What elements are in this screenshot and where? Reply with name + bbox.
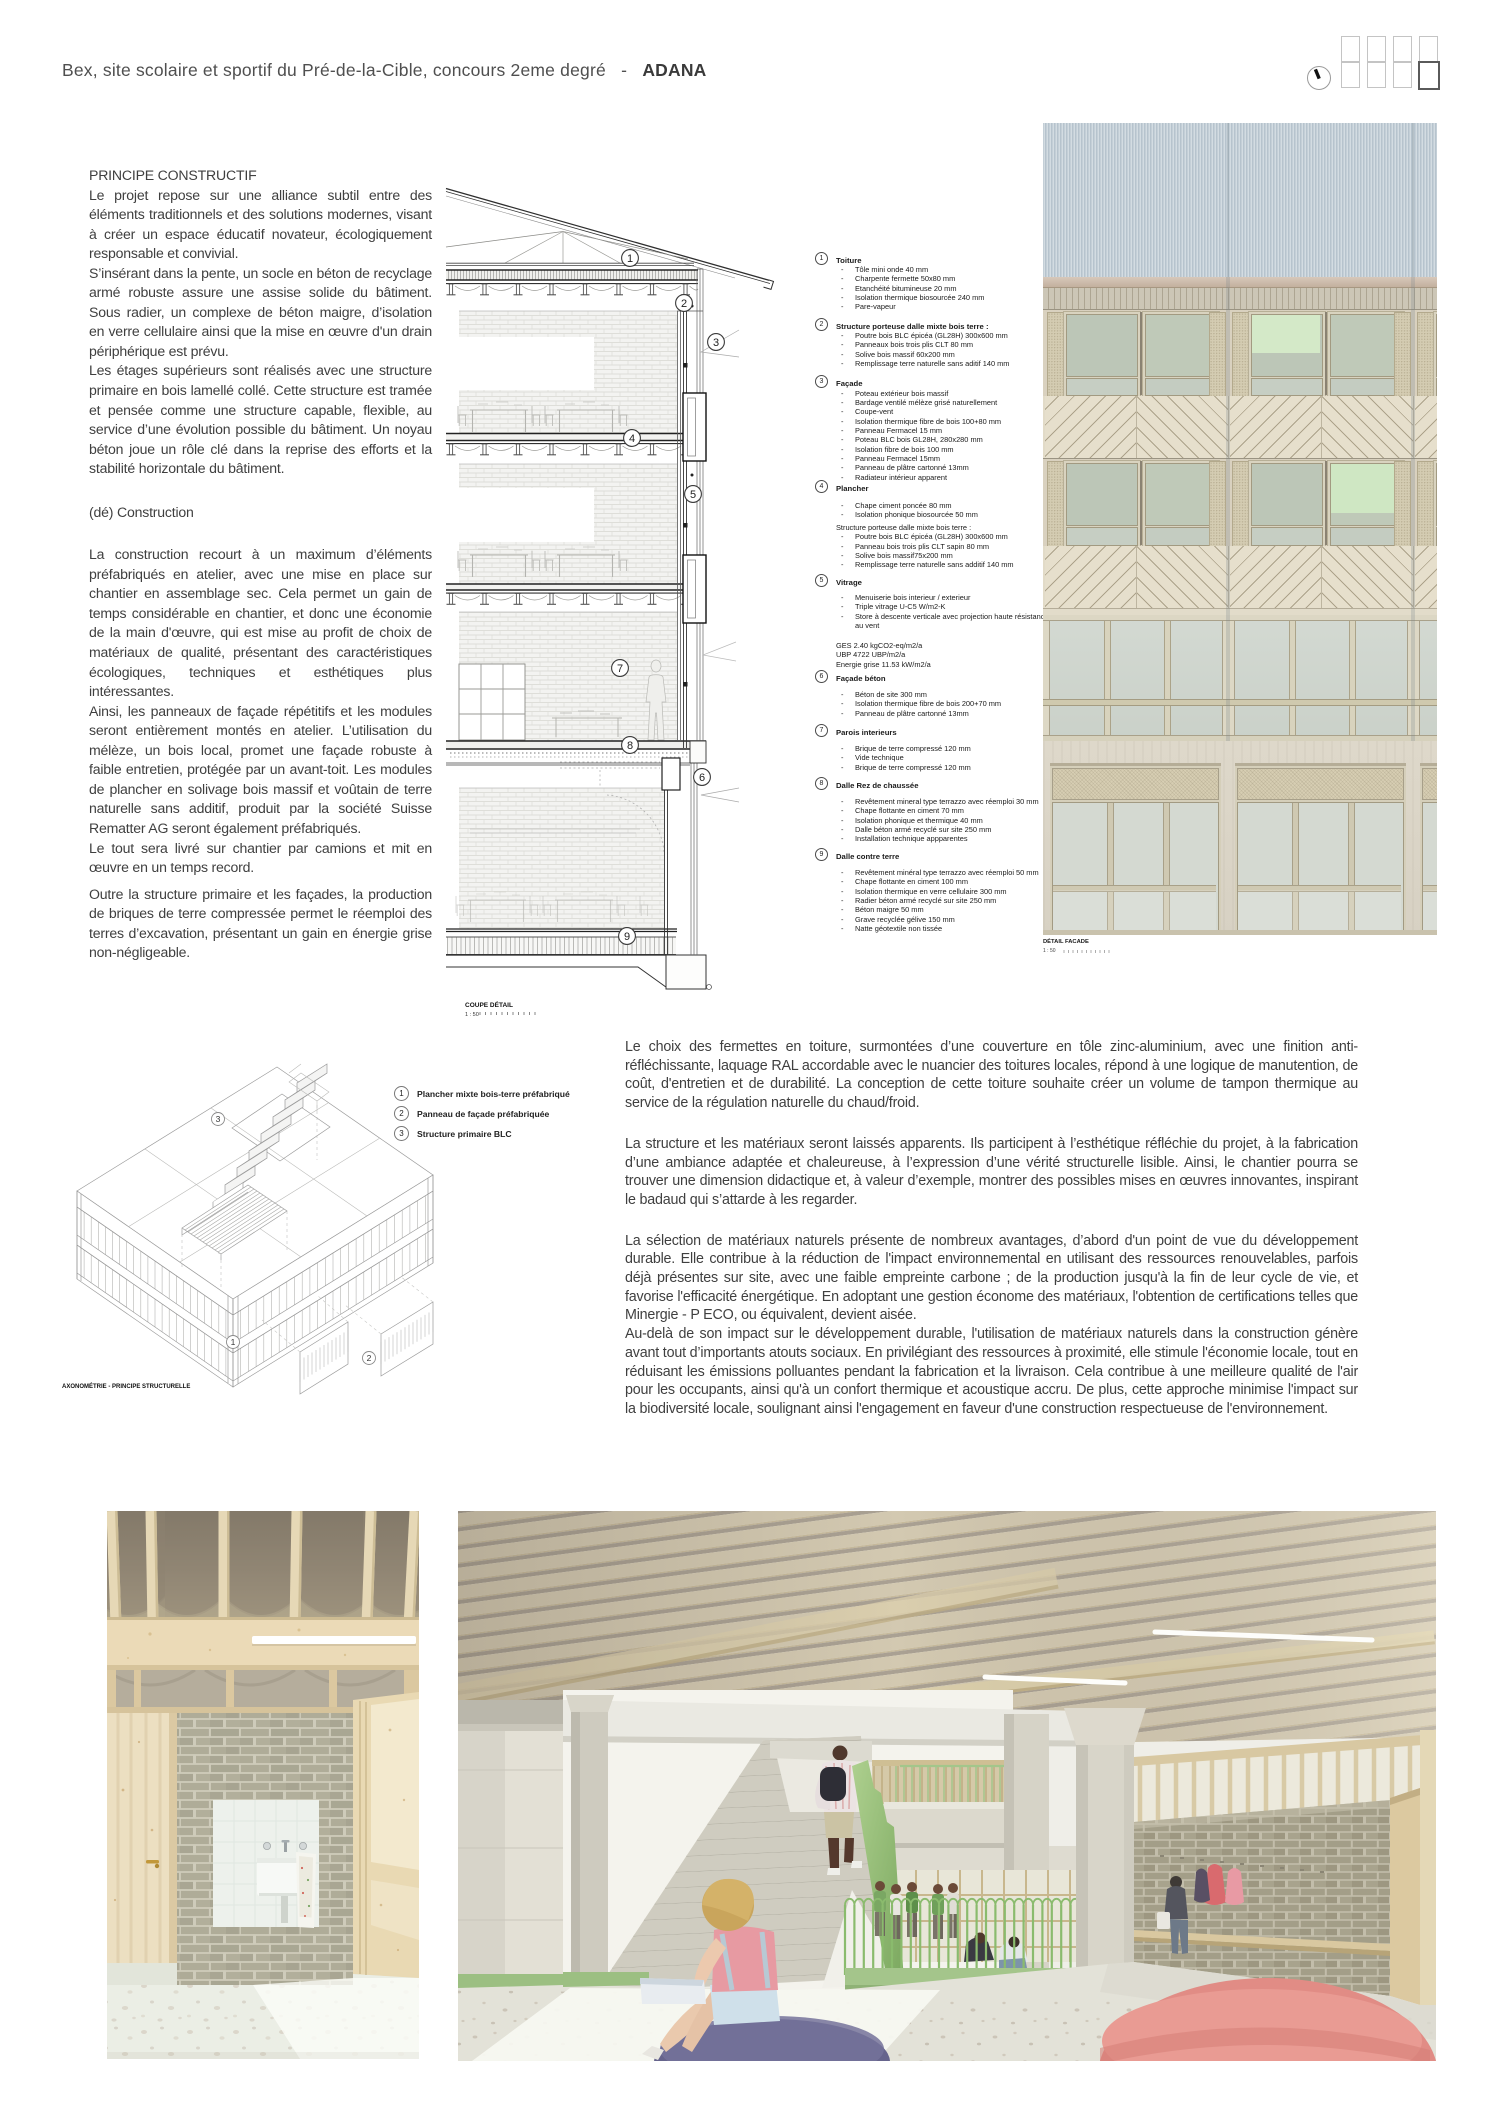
svg-text:3: 3 xyxy=(713,337,719,349)
svg-text:4: 4 xyxy=(629,433,635,445)
svg-text:COUPE DÉTAIL: COUPE DÉTAIL xyxy=(465,1000,513,1009)
svg-text:9: 9 xyxy=(624,931,630,943)
svg-text:1: 1 xyxy=(627,253,633,265)
svg-text:2: 2 xyxy=(681,298,687,310)
svg-text:5: 5 xyxy=(690,489,696,501)
svg-text:7: 7 xyxy=(617,663,623,675)
svg-text:1 : 50: 1 : 50 xyxy=(465,1012,479,1018)
svg-text:6: 6 xyxy=(699,772,705,784)
svg-text:1: 1 xyxy=(231,1337,236,1347)
svg-text:3: 3 xyxy=(216,1114,221,1124)
svg-text:8: 8 xyxy=(627,740,633,752)
svg-text:2: 2 xyxy=(367,1353,372,1363)
